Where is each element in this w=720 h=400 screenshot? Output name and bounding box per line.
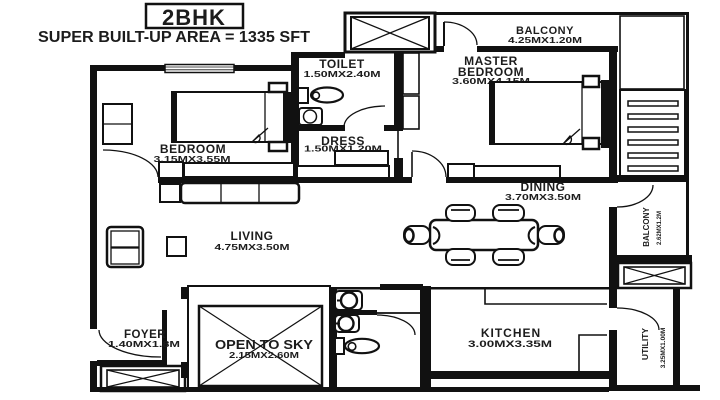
svg-text:KITCHEN: KITCHEN (481, 326, 541, 340)
svg-text:3.15MX3.55M: 3.15MX3.55M (154, 154, 231, 164)
svg-text:LIVING: LIVING (230, 229, 273, 243)
svg-text:1.40MX1.8M: 1.40MX1.8M (108, 339, 180, 349)
svg-text:UTILITY: UTILITY (640, 328, 650, 360)
svg-text:1.50MX2.40M: 1.50MX2.40M (304, 69, 381, 79)
svg-text:2BHK: 2BHK (162, 5, 226, 30)
svg-text:BALCONY: BALCONY (642, 207, 651, 247)
svg-text:2.15MX2.60M: 2.15MX2.60M (229, 350, 299, 360)
svg-text:SUPER BUILT-UP AREA = 1335 SFT: SUPER BUILT-UP AREA = 1335 SFT (38, 29, 311, 46)
svg-text:3.25MX1.00M: 3.25MX1.00M (660, 328, 667, 368)
svg-text:3.00MX3.35M: 3.00MX3.35M (468, 339, 552, 349)
svg-text:2.62MX1.2M: 2.62MX1.2M (657, 211, 663, 245)
svg-text:4.75MX3.50M: 4.75MX3.50M (215, 242, 290, 252)
svg-text:3.70MX3.50M: 3.70MX3.50M (505, 192, 581, 202)
svg-text:4.25MX1.20M: 4.25MX1.20M (508, 35, 582, 45)
